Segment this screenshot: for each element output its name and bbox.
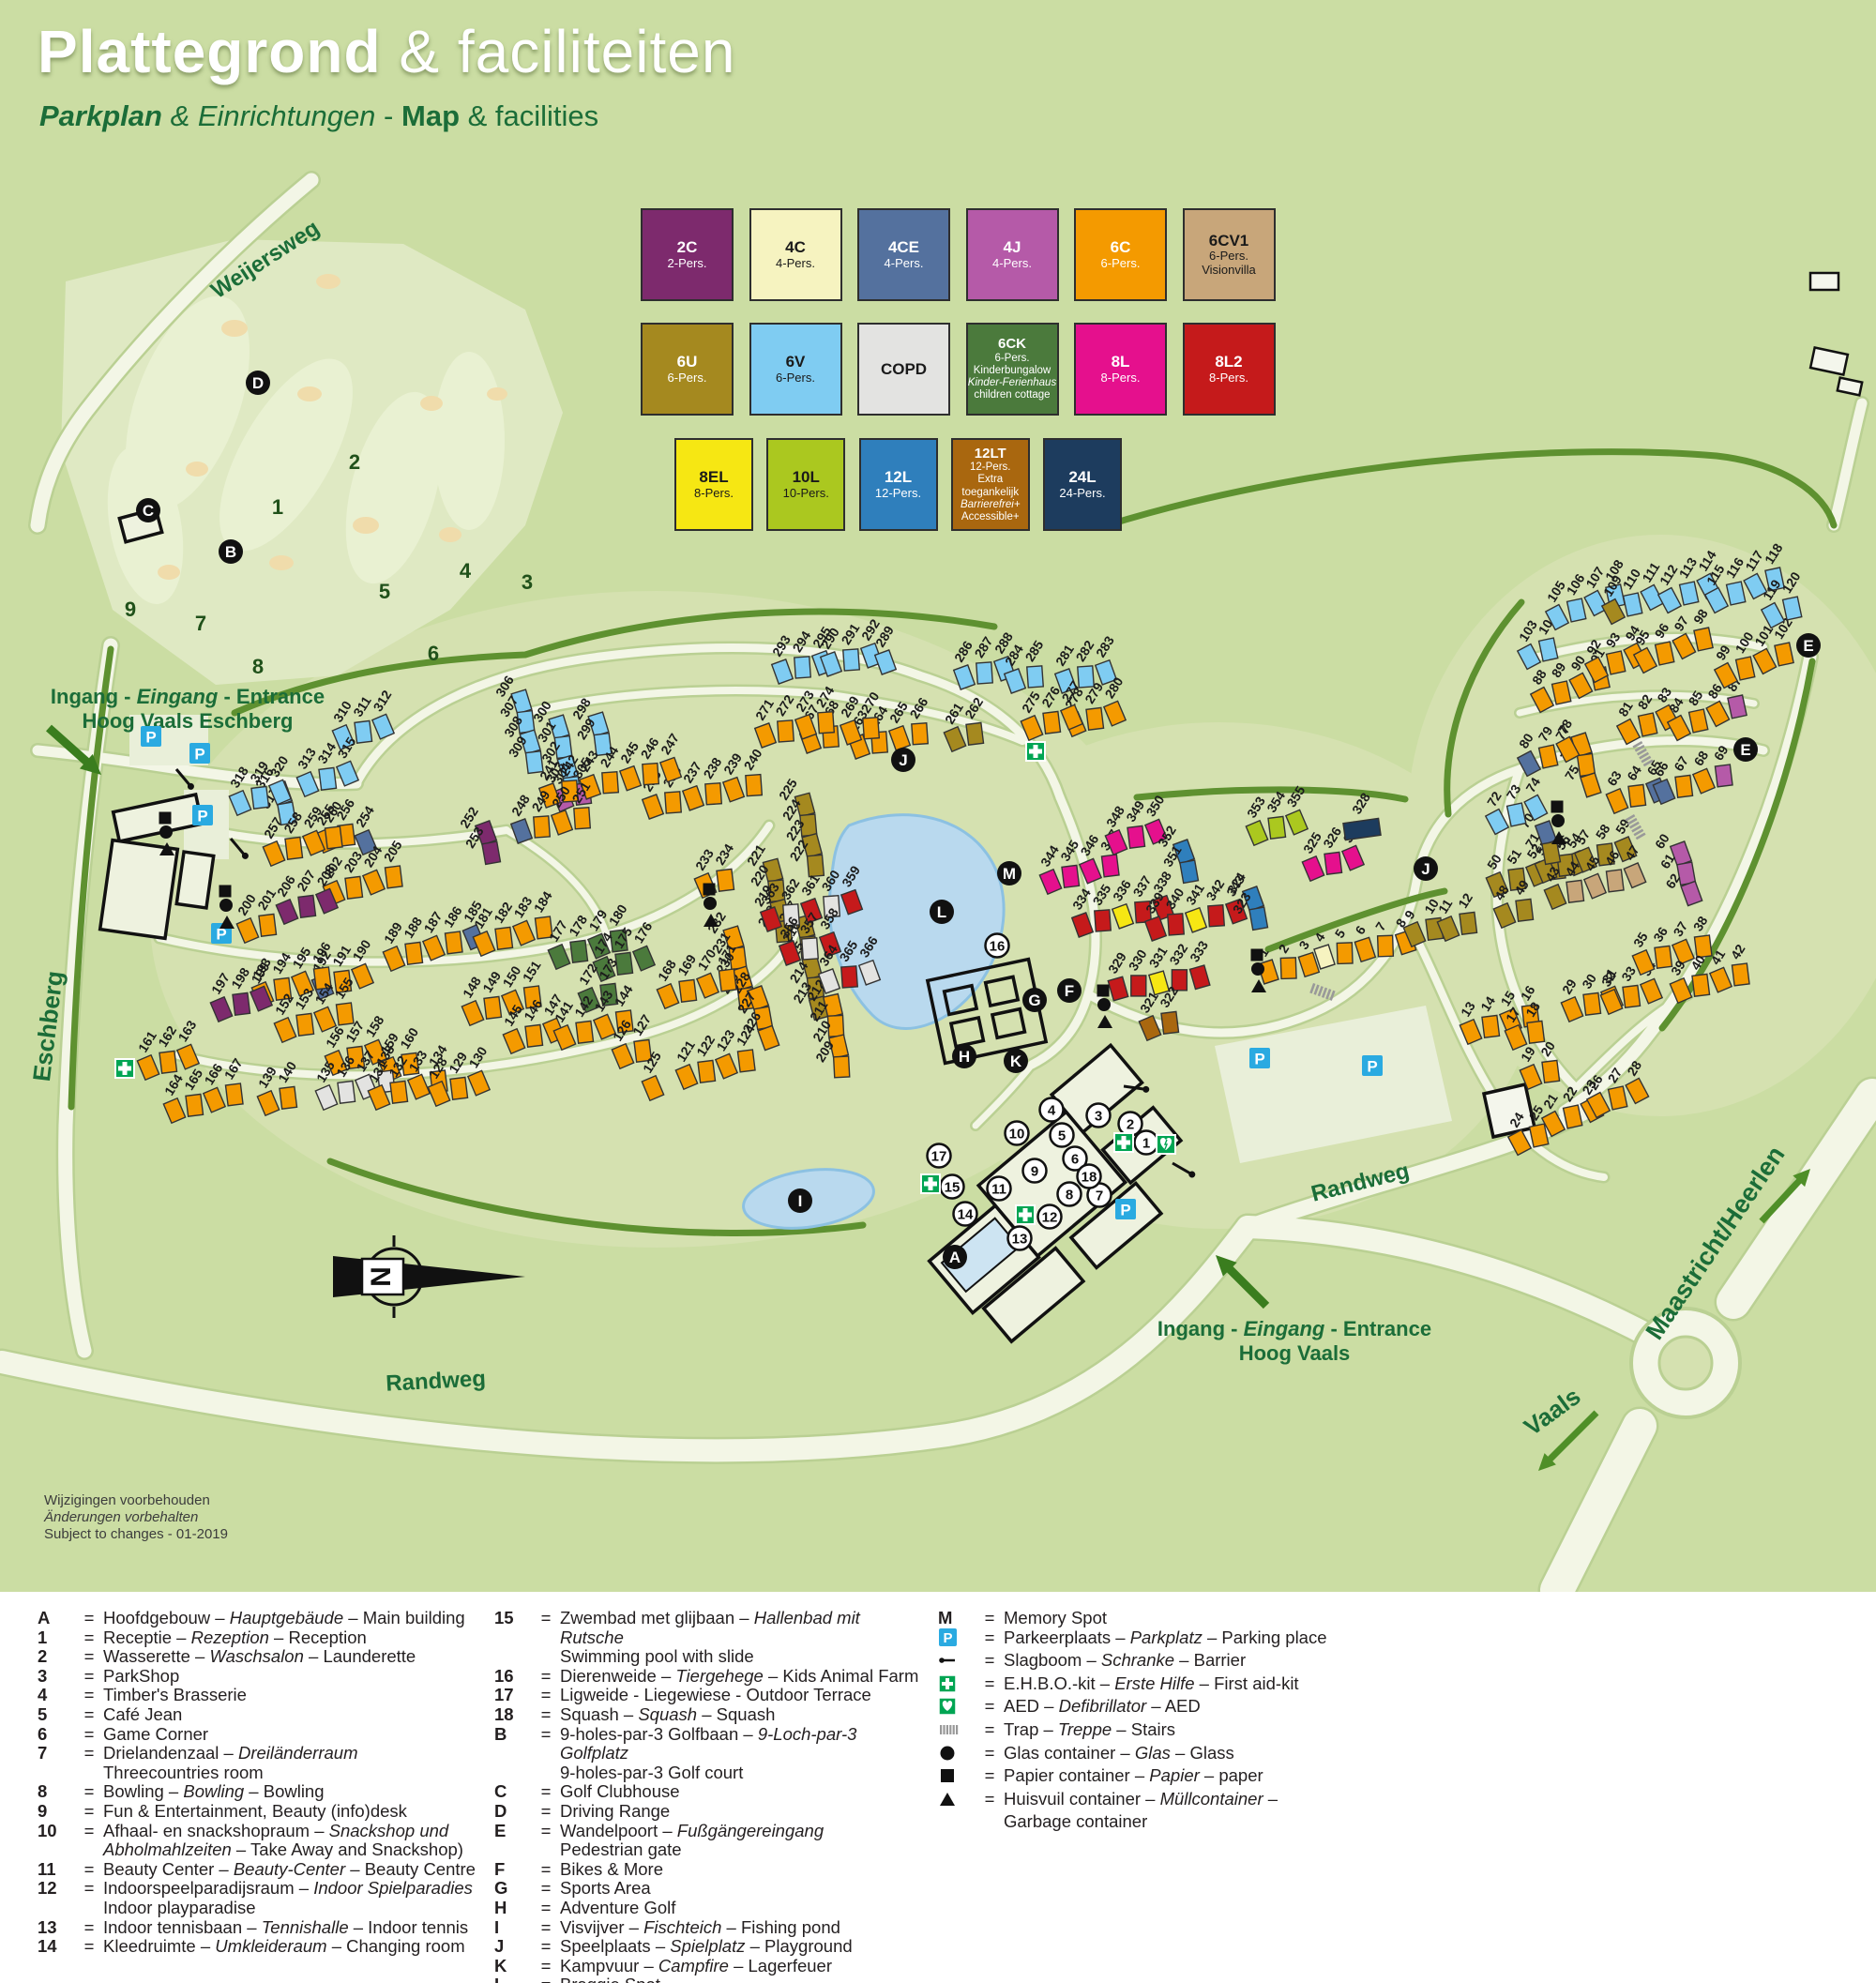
parking-icon: P xyxy=(141,726,161,747)
glass-container-icon xyxy=(1097,998,1111,1011)
house-marker-69 xyxy=(1715,764,1732,787)
golf-hole-number: 4 xyxy=(460,559,472,583)
type-extra-line: Kinderbungalow xyxy=(974,365,1051,377)
legend-entry-text: Café Jean xyxy=(103,1705,478,1725)
svg-text:2: 2 xyxy=(1127,1117,1134,1133)
house-marker-203 xyxy=(345,876,363,899)
type-code: 6C xyxy=(1111,238,1131,257)
golf-hole-number: 7 xyxy=(195,612,206,635)
parking-icon: P xyxy=(1115,1199,1136,1219)
svg-text:5: 5 xyxy=(1058,1128,1066,1144)
facility-number-marker-9: 9 xyxy=(1023,1159,1047,1183)
house-marker-44 xyxy=(1566,880,1584,902)
house-marker-351 xyxy=(1180,860,1199,883)
facility-number-marker-11: 11 xyxy=(988,1177,1011,1201)
legend-entry: 2=Wasserette – Waschsalon – Launderette xyxy=(38,1647,478,1667)
legend-entry-text: Fun & Entertainment, Beauty (info)desk xyxy=(103,1802,478,1822)
barrier-icon xyxy=(938,1651,959,1670)
svg-text:E: E xyxy=(1803,637,1813,655)
svg-text:16: 16 xyxy=(990,939,1006,955)
facility-number-marker-15: 15 xyxy=(941,1175,964,1199)
house-marker-165 xyxy=(186,1094,204,1116)
legend-entry-text: Trap – Treppe – Stairs xyxy=(1004,1720,1388,1740)
type-tile-24L: 24L24-Pers. xyxy=(1043,438,1122,531)
type-tile-6U: 6U6-Pers. xyxy=(641,323,734,416)
svg-text:A: A xyxy=(949,1249,961,1266)
house-marker-36 xyxy=(1655,946,1672,968)
legend-entry: 6=Game Corner xyxy=(38,1725,478,1745)
facility-letter-marker-K: K xyxy=(1004,1049,1028,1073)
type-code: 8L2 xyxy=(1215,353,1242,371)
legend-entry-text: Golf Clubhouse xyxy=(560,1782,926,1802)
svg-text:N: N xyxy=(366,1266,397,1287)
svg-text:B: B xyxy=(225,543,236,561)
legend-entry-text: Indoorspeelparadijsraum – Indoor Spielpa… xyxy=(103,1879,478,1899)
house-marker-258 xyxy=(285,837,303,859)
svg-text:P: P xyxy=(194,746,204,764)
facility-number-marker-1: 1 xyxy=(1135,1131,1158,1155)
type-code: 12LT xyxy=(975,446,1006,462)
map-note-line2: Änderungen vorbehalten xyxy=(43,1509,198,1525)
legend-entry-text: Afhaal- en snackshopraum – Snackshop und xyxy=(103,1822,478,1841)
house-marker-349 xyxy=(1127,825,1145,848)
paper-container-icon xyxy=(219,886,232,898)
svg-text:I: I xyxy=(798,1192,803,1210)
house-marker-236 xyxy=(665,792,681,813)
legend-entry-text: Wasserette – Waschsalon – Launderette xyxy=(103,1647,478,1667)
outbuilding xyxy=(1484,1084,1535,1137)
type-extra-line: Extra toegankelijk xyxy=(953,474,1028,498)
type-tile-8EL: 8EL8-Pers. xyxy=(674,438,753,531)
house-marker-42 xyxy=(1732,963,1749,986)
house-marker-260 xyxy=(325,826,342,849)
house-marker-253 xyxy=(482,841,501,864)
type-persons: 10-Pers. xyxy=(783,487,829,501)
house-marker-279 xyxy=(1086,707,1104,730)
type-persons: 6-Pers. xyxy=(994,353,1029,365)
parking-icon: P xyxy=(1249,1048,1270,1068)
type-persons: 8-Pers. xyxy=(694,487,734,501)
golf-hole-number: 8 xyxy=(252,655,264,678)
svg-text:13: 13 xyxy=(1012,1232,1028,1248)
house-marker-46 xyxy=(1606,870,1624,892)
house-marker-129 xyxy=(450,1077,468,1099)
svg-text:14: 14 xyxy=(958,1207,974,1223)
svg-text:H: H xyxy=(959,1048,970,1066)
svg-text:J: J xyxy=(1421,860,1430,878)
facility-letter-marker-J: J xyxy=(1414,856,1438,881)
legend-entry: 16=Dierenweide – Tiergehege – Kids Anima… xyxy=(494,1667,926,1687)
type-persons: 8-Pers. xyxy=(1101,371,1141,386)
type-code: 10L xyxy=(793,468,820,487)
legend-entry: 8=Bowling – Bowling – Bowling xyxy=(38,1782,478,1802)
legend-entry-text: Sports Area xyxy=(560,1879,926,1899)
house-marker-335 xyxy=(1095,910,1111,931)
type-persons: 8-Pers. xyxy=(1209,371,1248,386)
house-marker-64 xyxy=(1628,784,1646,807)
facility-letter-marker-I: I xyxy=(788,1188,812,1213)
house-marker-323 xyxy=(1249,907,1268,930)
house-marker-272 xyxy=(778,720,794,742)
golf-hole-number: 1 xyxy=(272,495,283,519)
svg-text:P: P xyxy=(943,1630,952,1646)
parking-icon: P xyxy=(938,1628,959,1647)
type-tile-12L: 12L12-Pers. xyxy=(859,438,938,531)
first-aid-icon xyxy=(115,1059,134,1078)
legend-entry: 1=Receptie – Rezeption – Reception xyxy=(38,1628,478,1648)
type-tile-COPD: COPD xyxy=(857,323,950,416)
first-aid-icon xyxy=(921,1174,940,1193)
svg-text:P: P xyxy=(197,808,207,825)
house-marker-294 xyxy=(794,657,810,678)
legend-entry-text: Abholmahlzeiten – Take Away and Snacksho… xyxy=(103,1840,478,1860)
legend-entry: 9=Fun & Entertainment, Beauty (info)desk xyxy=(38,1802,478,1822)
type-tile-8L: 8L8-Pers. xyxy=(1074,323,1167,416)
type-tile-4CE: 4CE4-Pers. xyxy=(857,208,950,301)
svg-text:F: F xyxy=(1065,982,1074,1000)
house-marker-209 xyxy=(834,1056,850,1078)
svg-text:1: 1 xyxy=(1142,1136,1150,1152)
legend-entry-text: Parkeerplaats – Parkplatz – Parking plac… xyxy=(1004,1628,1388,1648)
legend-entry: J=Speelplaats – Spielplatz – Playground xyxy=(494,1937,926,1957)
entrance-label: Ingang - Eingang - Entrance xyxy=(1157,1317,1431,1340)
facility-letter-marker-D: D xyxy=(246,371,270,395)
legend-entry-text: Beauty Center – Beauty-Center – Beauty C… xyxy=(103,1860,478,1880)
svg-text:J: J xyxy=(899,751,907,769)
facility-number-marker-2: 2 xyxy=(1119,1113,1142,1136)
house-marker-169 xyxy=(679,979,697,1002)
house-marker-2 xyxy=(1280,958,1296,979)
legend-entry-text: E.H.B.O.-kit – Erste Hilfe – First aid-k… xyxy=(1004,1674,1388,1694)
type-code: COPD xyxy=(881,360,927,379)
legend-entry-text: AED – Defibrillator – AED xyxy=(1004,1697,1388,1717)
legend-entry: 11=Beauty Center – Beauty-Center – Beaut… xyxy=(38,1860,478,1880)
first-aid-icon xyxy=(1016,1205,1035,1224)
house-marker-244 xyxy=(602,772,618,794)
legend-entry: 4=Timber's Brasserie xyxy=(38,1686,478,1705)
legend-entry: D=Driving Range xyxy=(494,1802,926,1822)
svg-text:3: 3 xyxy=(1095,1109,1102,1125)
house-marker-330 xyxy=(1131,976,1146,996)
house-marker-365 xyxy=(841,966,857,988)
svg-text:12: 12 xyxy=(1042,1210,1058,1226)
glass-container-icon xyxy=(1251,962,1264,976)
facility-letter-marker-E: E xyxy=(1796,633,1821,658)
type-tile-6V: 6V6-Pers. xyxy=(749,323,842,416)
legend-entry: 17=Ligweide - Liegewiese - Outdoor Terra… xyxy=(494,1686,926,1705)
type-code: 6CV1 xyxy=(1209,232,1249,250)
type-extra-line: Kinder-Ferienhaus xyxy=(968,377,1056,389)
house-marker-319 xyxy=(251,786,269,809)
legend-entry-text: Hoofdgebouw – Hauptgebäude – Main buildi… xyxy=(103,1609,478,1628)
legend-entry-cont: Abholmahlzeiten – Take Away and Snacksho… xyxy=(38,1840,478,1860)
type-code: 2C xyxy=(677,238,698,257)
legend-entry-cont: Indoor playparadise xyxy=(38,1899,478,1918)
legend-entry-text: Indoor playparadise xyxy=(103,1899,478,1918)
golf-hole-number: 2 xyxy=(349,450,360,474)
glass-container-icon xyxy=(159,825,173,839)
facility-number-marker-4: 4 xyxy=(1040,1098,1064,1122)
svg-text:8: 8 xyxy=(1066,1188,1073,1203)
house-marker-7 xyxy=(1378,935,1394,957)
type-persons: 4-Pers. xyxy=(992,257,1032,271)
legend-entry: 15=Zwembad met glijbaan – Hallenbad mit … xyxy=(494,1609,926,1647)
facility-letter-marker-G: G xyxy=(1022,988,1047,1012)
glass-container-icon xyxy=(1551,814,1565,827)
entrance-label: Hoog Vaals xyxy=(1239,1341,1351,1365)
house-marker-342 xyxy=(1208,905,1224,927)
parking-icon: P xyxy=(189,743,210,764)
type-code: 4CE xyxy=(888,238,919,257)
house-marker-149 xyxy=(484,996,502,1019)
house-marker-207 xyxy=(298,895,316,917)
svg-text:L: L xyxy=(937,903,946,921)
legend-entry: H=Adventure Golf xyxy=(494,1899,926,1918)
park-map-page: 3063073083093003013023032982993043053103… xyxy=(0,0,1876,1983)
facility-letter-marker-F: F xyxy=(1057,978,1082,1003)
house-marker-167 xyxy=(225,1083,243,1106)
house-marker-354 xyxy=(1268,816,1286,839)
house-marker-40 xyxy=(1692,974,1710,996)
house-marker-142 xyxy=(576,1021,594,1043)
house-marker-357 xyxy=(802,938,818,960)
first-aid-icon xyxy=(1026,742,1045,761)
house-marker-311 xyxy=(355,720,372,743)
house-marker-240 xyxy=(746,775,762,796)
house-marker-274 xyxy=(818,712,834,734)
legend-entry-text: Bikes & More xyxy=(560,1860,926,1880)
aed-icon xyxy=(1157,1135,1175,1154)
legend-entry: 3=ParkShop xyxy=(38,1667,478,1687)
legend-entry: I=Visvijver – Fischteich – Fishing pond xyxy=(494,1918,926,1938)
house-marker-326 xyxy=(1324,852,1342,874)
house-marker-285 xyxy=(1027,666,1043,688)
legend-entry: G=Sports Area xyxy=(494,1879,926,1899)
svg-text:10: 10 xyxy=(1009,1127,1025,1143)
legend-entry: =Trap – Treppe – Stairs xyxy=(938,1720,1388,1744)
house-marker-340 xyxy=(1168,914,1184,935)
legend-entry-text: Driving Range xyxy=(560,1802,926,1822)
type-code: 6CK xyxy=(998,336,1026,352)
type-code: 6U xyxy=(677,353,698,371)
house-marker-49 xyxy=(1516,899,1534,921)
legend-entry: M=Memory Spot xyxy=(938,1609,1388,1628)
stairs-icon xyxy=(938,1720,959,1739)
paper-container-icon xyxy=(1551,801,1564,813)
house-marker-136 xyxy=(338,1081,356,1103)
house-marker-188 xyxy=(405,942,423,964)
house-marker-246 xyxy=(643,764,658,785)
paper-icon xyxy=(938,1766,959,1785)
legend-entry-text: Visvijver – Fischteich – Fishing pond xyxy=(560,1918,926,1938)
legend-entry-text: Receptie – Rezeption – Reception xyxy=(103,1628,478,1648)
legend-entry-text: Braggie Spot xyxy=(560,1975,926,1983)
legend-entry-text: Papier container – Papier – paper xyxy=(1004,1766,1388,1786)
house-marker-71 xyxy=(1542,841,1561,864)
legend-entry-text: Slagboom – Schranke – Barrier xyxy=(1004,1651,1388,1671)
type-tile-6CK: 6CK6-Pers.KinderbungalowKinder-Ferienhau… xyxy=(966,323,1059,416)
type-persons: 24-Pers. xyxy=(1059,487,1105,501)
legend-entry: =Huisvuil container – Müllcontainer – xyxy=(938,1790,1388,1813)
type-code: 8L xyxy=(1112,353,1130,371)
svg-text:6: 6 xyxy=(1071,1152,1079,1168)
type-code: 4J xyxy=(1004,238,1021,257)
house-marker-205 xyxy=(385,866,402,888)
svg-text:17: 17 xyxy=(931,1149,947,1165)
type-tile-4J: 4J4-Pers. xyxy=(966,208,1059,301)
legend-entry: 10=Afhaal- en snackshopraum – Snackshop … xyxy=(38,1822,478,1841)
legend-entry-cont: 9-holes-par-3 Golf court xyxy=(494,1764,926,1783)
legend-entry-cont: Swimming pool with slide xyxy=(494,1647,926,1667)
type-tile-10L: 10L10-Pers. xyxy=(766,438,845,531)
legend-entry: E=Wandelpoort – Fußgängereingang xyxy=(494,1822,926,1841)
legend-entry-text: ParkShop xyxy=(103,1667,478,1687)
svg-text:M: M xyxy=(1003,865,1016,883)
type-persons: 12-Pers. xyxy=(970,462,1010,474)
paper-container-icon xyxy=(159,812,172,825)
legend-entry: C=Golf Clubhouse xyxy=(494,1782,926,1802)
facility-number-marker-17: 17 xyxy=(928,1144,951,1168)
house-marker-249 xyxy=(534,816,550,838)
svg-text:E: E xyxy=(1740,741,1750,759)
paper-container-icon xyxy=(703,884,716,896)
legend-entry: 14=Kleedruimte – Umkleideraum – Changing… xyxy=(38,1937,478,1957)
map-note-line1: Wijzigingen voorbehouden xyxy=(44,1492,210,1508)
house-marker-67 xyxy=(1675,775,1693,797)
type-extra-line: children cottage xyxy=(974,389,1050,401)
type-code: 8EL xyxy=(699,468,728,487)
facility-letter-marker-B: B xyxy=(219,539,243,564)
svg-text:P: P xyxy=(1254,1051,1264,1068)
svg-text:P: P xyxy=(1120,1202,1130,1219)
facility-number-marker-18: 18 xyxy=(1078,1165,1101,1188)
svg-text:11: 11 xyxy=(991,1182,1006,1198)
facility-letter-marker-H: H xyxy=(952,1044,976,1068)
legend-entry: F=Bikes & More xyxy=(494,1860,926,1880)
house-marker-171 xyxy=(719,969,736,991)
legend-entry: =Glas container – Glas – Glass xyxy=(938,1744,1388,1767)
house-marker-14 xyxy=(1482,1015,1500,1037)
house-marker-30 xyxy=(1583,992,1601,1015)
facility-number-marker-16: 16 xyxy=(986,934,1009,958)
house-marker-186 xyxy=(445,931,462,954)
house-marker-5 xyxy=(1337,943,1353,964)
legend-entry-text: Glas container – Glas – Glass xyxy=(1004,1744,1388,1764)
parking-icon: P xyxy=(1362,1055,1383,1076)
type-persons: 6-Pers. xyxy=(776,371,815,386)
type-persons: 4-Pers. xyxy=(776,257,815,271)
legend-entry-text: Indoor tennisbaan – Tennishalle – Indoor… xyxy=(103,1918,478,1938)
map-area: 3063073083093003013023032982993043053103… xyxy=(0,0,1876,1592)
svg-text:P: P xyxy=(1367,1058,1377,1076)
house-marker-132 xyxy=(390,1081,408,1103)
facility-number-marker-12: 12 xyxy=(1038,1205,1062,1229)
house-marker-262 xyxy=(966,722,984,745)
house-marker-347 xyxy=(1101,855,1119,877)
house-marker-276 xyxy=(1043,711,1061,734)
legend-column-2: 15=Zwembad met glijbaan – Hallenbad mit … xyxy=(494,1609,926,1983)
house-marker-140 xyxy=(280,1086,297,1109)
svg-text:15: 15 xyxy=(945,1180,961,1196)
type-code: 12L xyxy=(885,468,912,487)
legend-entry: 5=Café Jean xyxy=(38,1705,478,1725)
type-tile-12LT: 12LT12-Pers.Extra toegankelijkBarrierefr… xyxy=(951,438,1030,531)
legend-entry-text: Garbage container xyxy=(1004,1812,1388,1832)
map-note-line3: Subject to changes - 01-2019 xyxy=(44,1526,228,1542)
facility-number-marker-13: 13 xyxy=(1008,1227,1032,1250)
facility-letter-marker-C: C xyxy=(136,498,160,522)
facility-number-marker-10: 10 xyxy=(1006,1122,1029,1145)
legend-entry-text: Dierenweide – Tiergehege – Kids Animal F… xyxy=(560,1667,926,1687)
legend-entry: P=Parkeerplaats – Parkplatz – Parking pl… xyxy=(938,1628,1388,1652)
firstaid-icon xyxy=(938,1674,959,1693)
type-tile-6C: 6C6-Pers. xyxy=(1074,208,1167,301)
type-persons: 6-Pers. Visionvilla xyxy=(1185,250,1274,278)
legend-entry: L=Braggie Spot xyxy=(494,1975,926,1983)
glass-container-icon xyxy=(219,899,233,912)
house-marker-146 xyxy=(525,1024,543,1047)
legend-entry-text: Kleedruimte – Umkleideraum – Changing ro… xyxy=(103,1937,478,1957)
legend-entry-text: Squash – Squash – Squash xyxy=(560,1705,926,1725)
svg-text:G: G xyxy=(1028,991,1040,1009)
type-code: 24L xyxy=(1068,468,1096,487)
house-marker-201 xyxy=(259,914,277,936)
legend-entry-text: Timber's Brasserie xyxy=(103,1686,478,1705)
house-marker-314 xyxy=(319,767,337,790)
house-marker-153 xyxy=(296,1013,314,1036)
facility-letter-marker-L: L xyxy=(930,900,954,924)
svg-text:C: C xyxy=(143,502,154,520)
type-extra-line: Accessible+ xyxy=(961,511,1020,523)
house-marker-345 xyxy=(1062,865,1080,887)
svg-text:P: P xyxy=(145,729,156,747)
legend-entry: =Slagboom – Schranke – Barrier xyxy=(938,1651,1388,1674)
house-marker-178 xyxy=(570,940,588,962)
house-marker-182 xyxy=(495,927,513,949)
house-marker-20 xyxy=(1542,1060,1560,1082)
legend-entry-text: 9-holes-par-3 Golf court xyxy=(560,1764,926,1783)
house-marker-12 xyxy=(1460,912,1477,934)
legend-entry-text: Kampvuur – Campfire – Lagerfeuer xyxy=(560,1957,926,1976)
svg-text:D: D xyxy=(252,374,264,392)
type-persons: 2-Pers. xyxy=(668,257,707,271)
house-marker-291 xyxy=(843,649,859,671)
type-code: 4C xyxy=(785,238,806,257)
legend-entry: =Papier container – Papier – paper xyxy=(938,1766,1388,1790)
golf-hole-number: 6 xyxy=(428,642,439,665)
legend-entry: 13=Indoor tennisbaan – Tennishalle – Ind… xyxy=(38,1918,478,1938)
road-label: Randweg xyxy=(386,1366,487,1397)
first-aid-icon xyxy=(1114,1133,1133,1152)
legend-entry-text: Drielandenzaal – Dreiländerraum xyxy=(103,1744,478,1764)
legend-entry-text: Wandelpoort – Fußgängereingang xyxy=(560,1822,926,1841)
golf-hole-number: 5 xyxy=(379,580,390,603)
garbage-icon xyxy=(938,1790,959,1809)
legend-entry: A=Hoofdgebouw – Hauptgebäude – Main buil… xyxy=(38,1609,478,1628)
type-persons: 6-Pers. xyxy=(668,371,707,386)
facility-number-marker-8: 8 xyxy=(1058,1183,1082,1206)
paper-container-icon xyxy=(1251,949,1263,961)
house-marker-238 xyxy=(705,783,721,805)
facility-number-marker-14: 14 xyxy=(954,1203,977,1226)
legend-entry-text: Speelplaats – Spielplatz – Playground xyxy=(560,1937,926,1957)
house-marker-198 xyxy=(233,992,250,1015)
type-persons: 6-Pers. xyxy=(1101,257,1141,271)
legend-entry-text: Bowling – Bowling – Bowling xyxy=(103,1782,478,1802)
legend-entry-text: Adventure Golf xyxy=(560,1899,926,1918)
type-persons: 4-Pers. xyxy=(885,257,924,271)
house-marker-18 xyxy=(1527,1021,1545,1043)
